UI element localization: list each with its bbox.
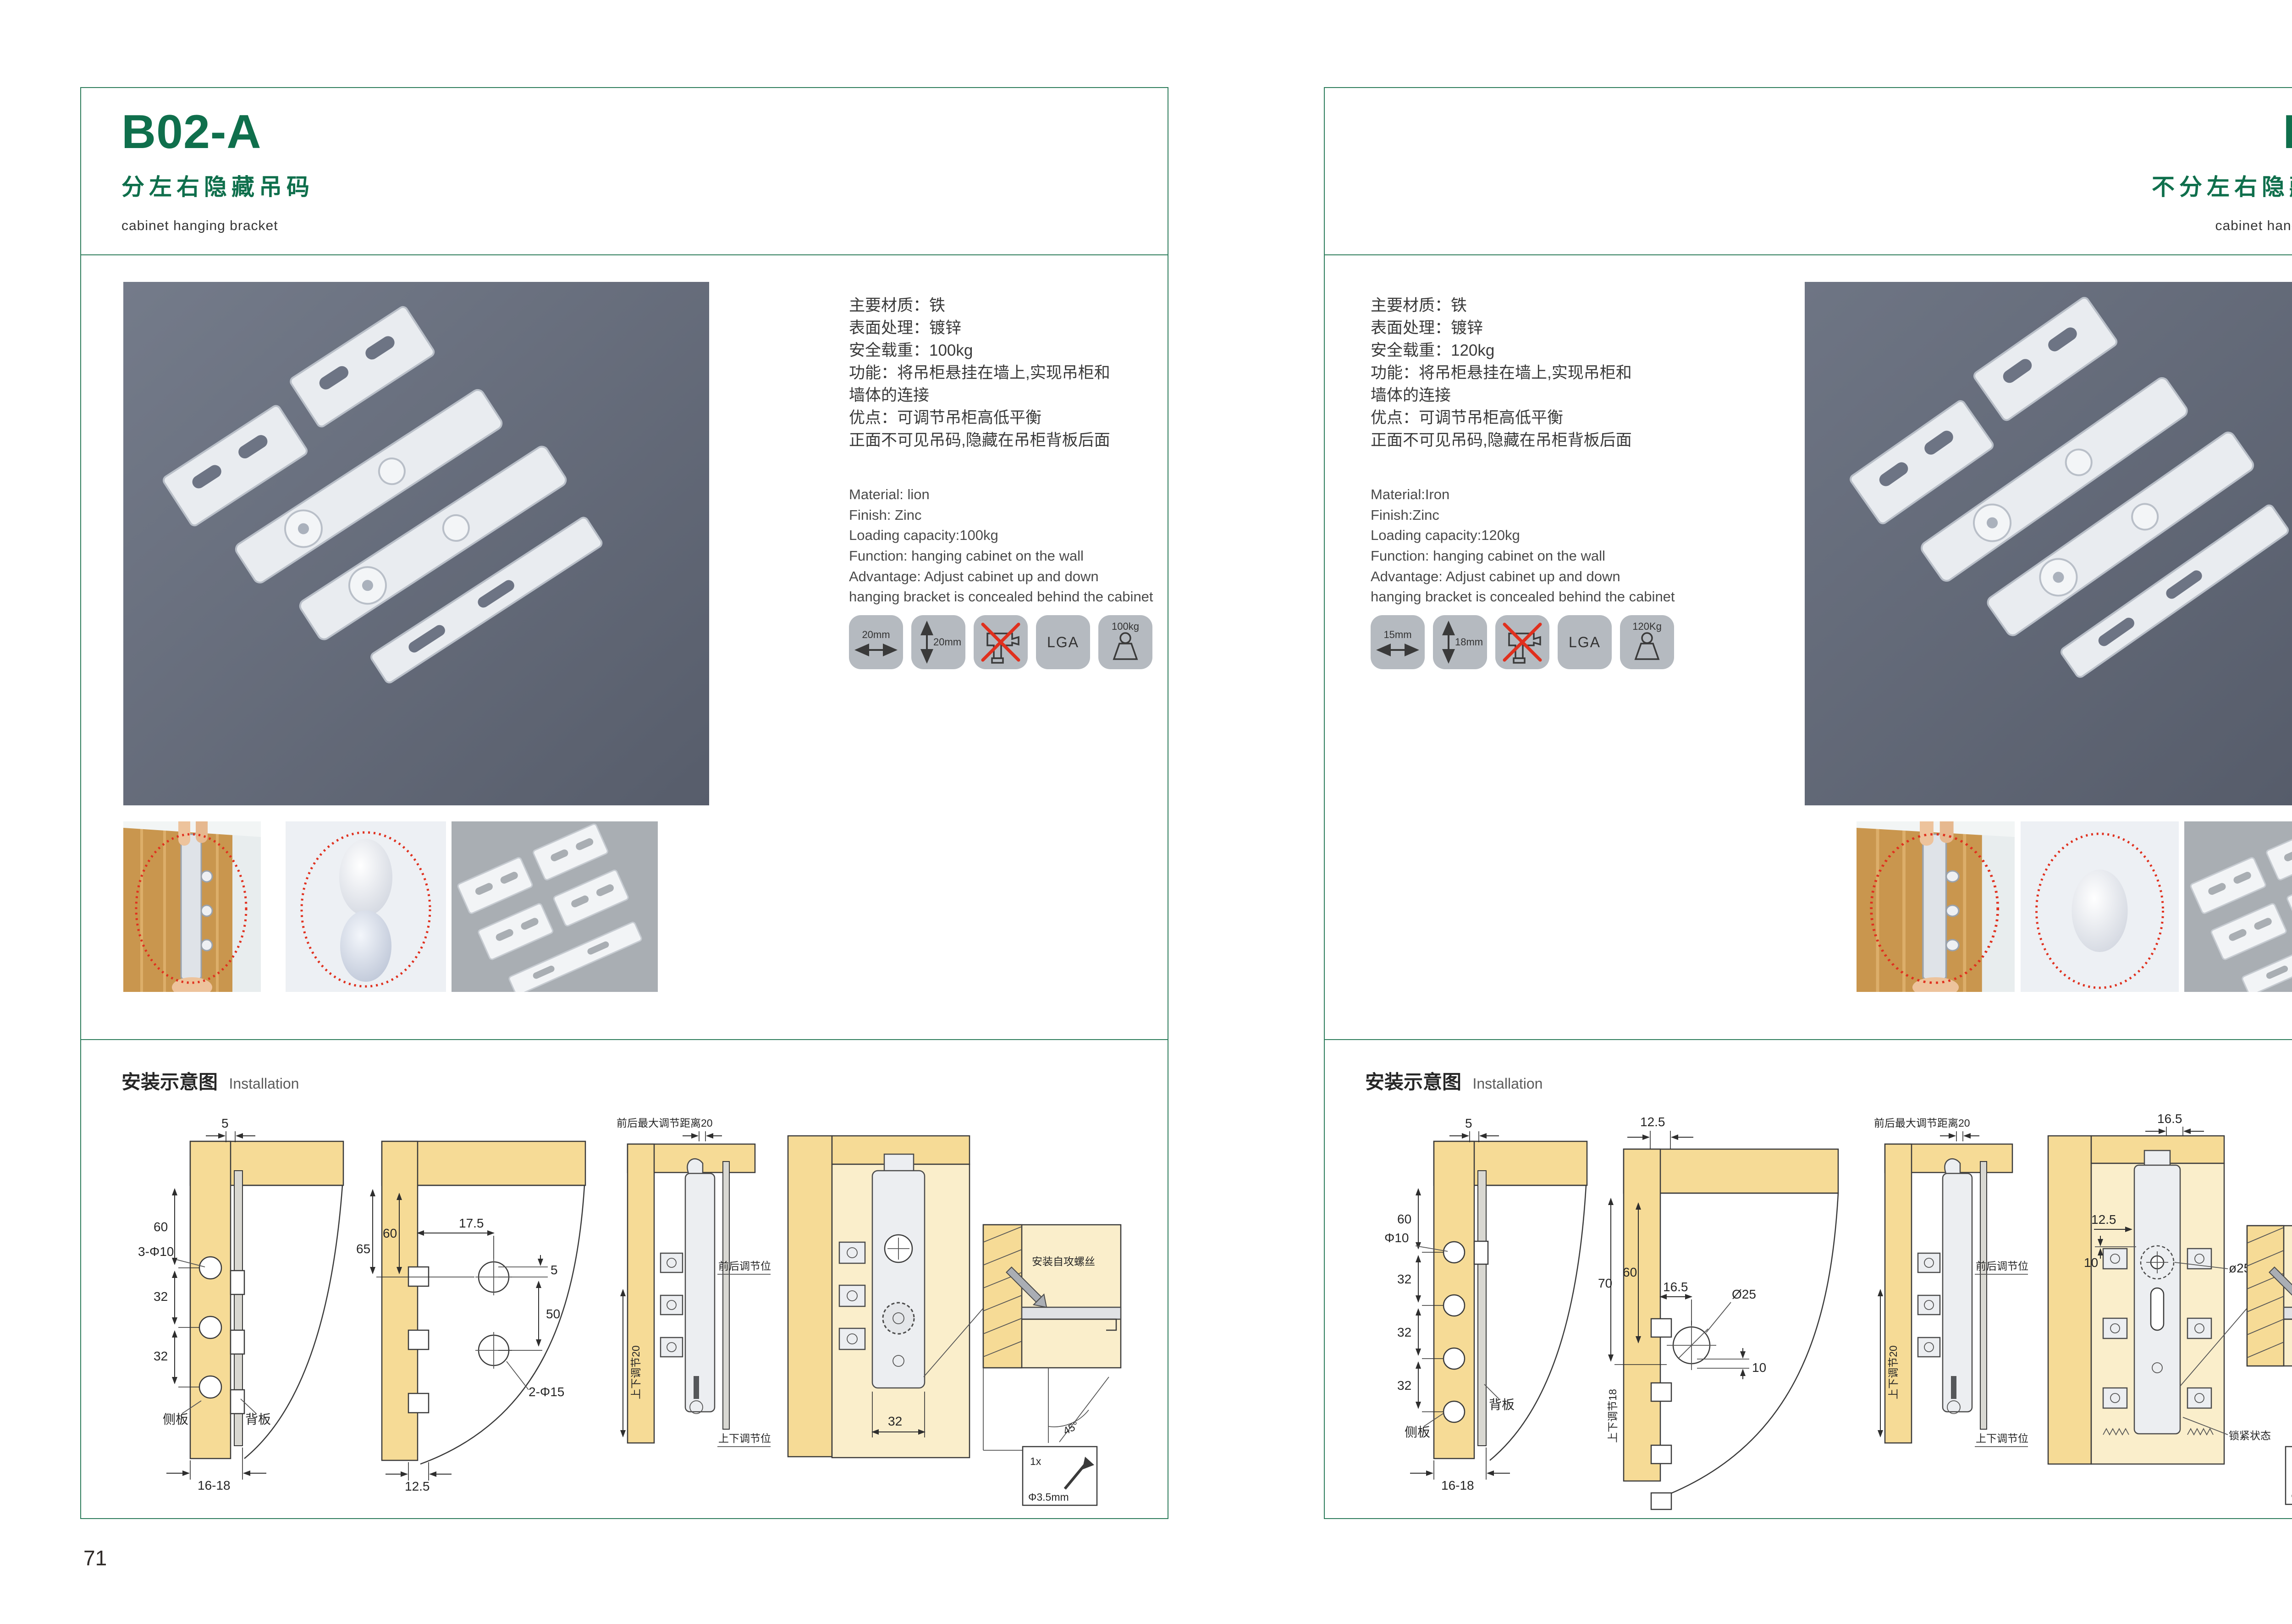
dim-label: 70: [1598, 1276, 1612, 1290]
header-box-left: B02-A 分左右隐藏吊码 cabinet hanging bracket: [80, 87, 1168, 255]
dim-label: 上下调节位: [718, 1432, 771, 1444]
spec-line: Finish: Zinc: [849, 505, 1161, 526]
dim-label: 5: [221, 1116, 229, 1130]
dim-label: 前后最大调节距离20: [1874, 1117, 1970, 1129]
diagram-back-panel: 12.5 70 60 16.5 Ø25 10 上下调节18: [1598, 1113, 1868, 1517]
diagram-side-panel: 5 60 3-Φ10 32 32 侧板 背板 16-18: [136, 1116, 347, 1492]
no-drill-icon: [1495, 615, 1549, 669]
thumb-graphic: [452, 821, 658, 992]
spec-line: 功能：将吊柜悬挂在墙上,实现吊柜和: [1371, 362, 1673, 384]
icon-label: 100kg: [1112, 621, 1139, 632]
no-drill-icon: [974, 615, 1028, 669]
spec-line: 优点：可调节吊柜高低平衡: [1371, 407, 1673, 429]
bracket-photo-graphic: [123, 282, 709, 805]
spec-line: 优点：可调节吊柜高低平衡: [849, 407, 1152, 429]
icon-label: 20mm: [933, 636, 961, 648]
spec-line: 表面处理：镀锌: [1371, 317, 1673, 339]
bracket-photo-graphic: [1805, 282, 2292, 805]
dim-label: 32: [154, 1349, 168, 1363]
dim-label: 16-18: [198, 1478, 231, 1492]
dim-label: 32: [888, 1414, 902, 1428]
dim-label: 32: [1397, 1378, 1411, 1393]
page-right: B03 不分左右隐藏吊码 cabinet hanging bracket 主要材…: [1245, 0, 2292, 1624]
spec-line: Advantage: Adjust cabinet up and down: [849, 567, 1161, 587]
icon-label: LGA: [1569, 634, 1601, 650]
dim-label: 32: [154, 1289, 168, 1304]
dim-label: 60: [1623, 1265, 1637, 1279]
dim-label: 60: [383, 1226, 397, 1240]
icon-label: 15mm: [1383, 629, 1411, 640]
load-weight-icon: 120Kg: [1620, 615, 1674, 669]
height-arrow-icon: 20mm: [911, 615, 965, 669]
spec-line: 正面不可见吊码,隐藏在吊柜背板后面: [1371, 429, 1673, 451]
spec-line: hanging bracket is concealed behind the …: [849, 587, 1161, 607]
dim-label: 前后调节位: [718, 1260, 771, 1272]
specs-chinese: 主要材质：铁 表面处理：镀锌 安全载重：100kg 功能：将吊柜悬挂在墙上,实现…: [849, 294, 1152, 451]
qty-label: 1x: [1030, 1455, 1041, 1467]
lga-cert-icon: LGA: [1558, 615, 1612, 669]
header-box-right: B03 不分左右隐藏吊码 cabinet hanging bracket: [1324, 87, 2292, 255]
dim-label: 3-Φ10: [138, 1244, 174, 1259]
dim-label: 10: [2084, 1255, 2098, 1270]
part-label: 背板: [1489, 1398, 1515, 1412]
diagram-mounting-detail: 32 安装自攻螺丝 45° 1x Φ3.5mm: [768, 1111, 1140, 1514]
thumb-graphic: [286, 821, 446, 992]
thumbnail-parts: [2184, 821, 2292, 992]
spec-icon-row: 20mm 20mm LGA: [849, 615, 1152, 669]
spec-line: 安全载重：100kg: [849, 339, 1152, 362]
spec-line: Function: hanging cabinet on the wall: [1371, 546, 1682, 567]
icon-label: LGA: [1047, 634, 1079, 650]
page-left: B02-A 分左右隐藏吊码 cabinet hanging bracket: [0, 0, 1245, 1624]
spec-line: 表面处理：镀锌: [849, 317, 1152, 339]
thumbnail-parts: [452, 821, 658, 992]
note-label: 安装自攻螺丝: [1032, 1255, 1095, 1267]
page-number-left: 71: [83, 1546, 107, 1570]
dim-label: 前后最大调节距离20: [617, 1117, 713, 1129]
part-label: 侧板: [163, 1412, 188, 1426]
product-box-right: 主要材质：铁 表面处理：镀锌 安全载重：120kg 功能：将吊柜悬挂在墙上,实现…: [1324, 254, 2292, 1040]
dim-label: 65: [356, 1242, 370, 1256]
dim-label: Φ10: [1384, 1231, 1409, 1245]
dim-label: 上下调节18: [1607, 1389, 1619, 1443]
dim-label: 16.5: [2157, 1112, 2182, 1126]
dim-label: 上下调节位: [1976, 1432, 2028, 1444]
dim-label: 上下调节20: [630, 1345, 642, 1399]
spec-line: Material: lion: [849, 484, 1161, 505]
dim-label: 32: [1397, 1325, 1411, 1339]
specs-chinese: 主要材质：铁 表面处理：镀锌 安全载重：120kg 功能：将吊柜悬挂在墙上,实现…: [1371, 294, 1673, 451]
diagram-back-panel: 17.5 65 60 5 50 2-Φ15 12.5: [355, 1116, 612, 1492]
spec-line: Finish:Zinc: [1371, 505, 1682, 526]
dim-label: 12.5: [2091, 1212, 2116, 1227]
product-name-en: cabinet hanging bracket: [2152, 218, 2292, 234]
icon-label: 120Kg: [1632, 621, 1662, 632]
lga-cert-icon: LGA: [1036, 615, 1090, 669]
icon-label: 20mm: [862, 629, 890, 640]
thumbnail-hidden-view: [286, 821, 446, 992]
thumbnail-install-photo: [123, 821, 261, 992]
dim-label: Ø25: [1732, 1287, 1756, 1301]
thumbnail-install-photo: [1857, 821, 2015, 992]
diagram-adjustment-section: 前后最大调节距离20 上下调节20 前后调节位 上下调节位: [1873, 1116, 2029, 1492]
installation-box-left: 安装示意图 Installation 5 60 3-Φ10 32 32 侧板 背…: [80, 1039, 1168, 1519]
product-name-cn: 分左右隐藏吊码: [121, 169, 314, 202]
dim-label: 32: [1397, 1272, 1411, 1286]
thumbnail-hidden-view: [2021, 821, 2179, 992]
width-arrow-icon: 20mm: [849, 615, 903, 669]
section-title: 安装示意图 Installation: [121, 1067, 299, 1095]
dim-label: 5: [551, 1263, 558, 1277]
dim-label: 60: [1397, 1212, 1411, 1226]
spec-line: Loading capacity:100kg: [849, 525, 1161, 546]
spec-line: Advantage: Adjust cabinet up and down: [1371, 567, 1682, 587]
dim-label: 60: [154, 1220, 168, 1234]
spec-icon-row: 15mm 18mm LGA: [1371, 615, 1674, 669]
product-box-left: 主要材质：铁 表面处理：镀锌 安全载重：100kg 功能：将吊柜悬挂在墙上,实现…: [80, 254, 1168, 1040]
section-title-cn: 安装示意图: [121, 1071, 218, 1093]
product-code: B03: [2152, 108, 2292, 156]
thumb-graphic: [123, 821, 261, 992]
dim-label: 上下调节20: [1887, 1345, 1899, 1399]
thumb-graphic: [1857, 821, 2015, 992]
part-label: 背板: [245, 1412, 271, 1426]
dim-label: 17.5: [459, 1216, 484, 1230]
specs-english: Material:Iron Finish:Zinc Loading capaci…: [1371, 484, 1682, 607]
spec-line: 功能：将吊柜悬挂在墙上,实现吊柜和: [849, 362, 1152, 384]
width-arrow-icon: 15mm: [1371, 615, 1425, 669]
specs-english: Material: lion Finish: Zinc Loading capa…: [849, 484, 1161, 607]
thumb-graphic: [2021, 821, 2179, 992]
spec-line: 主要材质：铁: [849, 294, 1152, 317]
spec-line: hanging bracket is concealed behind the …: [1371, 587, 1682, 607]
thumb-graphic: [2184, 821, 2292, 992]
dim-label: 2-Φ15: [529, 1385, 564, 1399]
dim-label: 16-18: [1441, 1478, 1474, 1492]
spec-line: 安全载重：120kg: [1371, 339, 1673, 362]
load-weight-icon: 100kg: [1098, 615, 1152, 669]
section-title-en: Installation: [1472, 1075, 1543, 1092]
diagram-mounting-detail: 16.5 12.5 10 ø25: [2022, 1111, 2292, 1514]
dim-label: 5: [1465, 1116, 1472, 1130]
section-title-cn: 安装示意图: [1365, 1071, 1461, 1093]
state-label: 锁紧状态: [2229, 1430, 2271, 1442]
dim-label: 16.5: [1663, 1280, 1688, 1294]
product-name-cn: 不分左右隐藏吊码: [2152, 169, 2292, 202]
dim-label: 12.5: [405, 1479, 430, 1492]
height-arrow-icon: 18mm: [1433, 615, 1487, 669]
spec-line: Loading capacity:120kg: [1371, 525, 1682, 546]
part-label: 侧板: [1405, 1425, 1430, 1439]
spec-line: 正面不可见吊码,隐藏在吊柜背板后面: [849, 429, 1152, 451]
spec-line: 主要材质：铁: [1371, 294, 1673, 317]
installation-box-right: 安装示意图 Installation 5 60 Φ10 32 32 32 背板: [1324, 1039, 2292, 1519]
diagram-side-panel: 5 60 Φ10 32 32 32 背板 侧板 16-18: [1380, 1116, 1591, 1492]
icon-label: 18mm: [1455, 636, 1483, 648]
spec-line: Material:Iron: [1371, 484, 1682, 505]
dim-label: Φ3.5mm: [1028, 1491, 1069, 1503]
spec-line: 墙体的连接: [849, 384, 1152, 407]
dim-label: 12.5: [1640, 1115, 1665, 1129]
product-photo: [1805, 282, 2292, 805]
dim-label: 10: [1752, 1360, 1766, 1375]
section-title: 安装示意图 Installation: [1365, 1067, 1543, 1095]
product-code: B02-A: [121, 108, 314, 156]
spec-line: 墙体的连接: [1371, 384, 1673, 407]
dim-label: 50: [546, 1307, 560, 1321]
product-photo: [123, 282, 709, 805]
spec-line: Function: hanging cabinet on the wall: [849, 546, 1161, 567]
section-title-en: Installation: [229, 1075, 299, 1092]
diagram-adjustment-section: 前后最大调节距离20 上下调节20 前后调节位 上下调节位: [616, 1116, 771, 1492]
dim-label: 前后调节位: [1976, 1260, 2028, 1272]
dim-label: 45°: [1061, 1419, 1081, 1437]
product-name-en: cabinet hanging bracket: [121, 218, 314, 234]
